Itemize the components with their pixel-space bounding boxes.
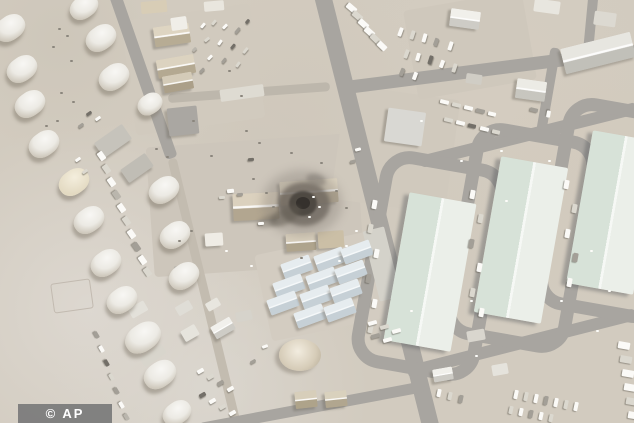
ground-object xyxy=(250,265,253,267)
vehicle xyxy=(447,392,453,401)
vehicle xyxy=(523,392,529,402)
ground-object xyxy=(410,310,413,312)
building xyxy=(515,78,547,102)
building xyxy=(384,108,426,147)
ground-object xyxy=(345,245,348,247)
vehicle xyxy=(617,341,630,350)
vehicle xyxy=(248,158,254,162)
vehicle xyxy=(548,414,554,423)
ground-object xyxy=(58,28,61,30)
ground-object xyxy=(190,230,193,232)
vehicle xyxy=(528,410,534,419)
vehicle xyxy=(543,396,549,406)
building xyxy=(204,0,225,12)
ground-object xyxy=(470,300,473,302)
vehicle xyxy=(627,411,634,420)
ground-object xyxy=(596,330,599,332)
ground-object xyxy=(272,206,275,208)
building xyxy=(324,390,348,408)
ground-object xyxy=(240,95,243,97)
vehicle xyxy=(619,355,632,364)
vehicle xyxy=(436,389,442,398)
satellite-image: © AP xyxy=(0,0,634,423)
ground-object xyxy=(192,120,195,122)
ground-object xyxy=(210,155,213,157)
dome-tent xyxy=(279,339,321,371)
vehicle xyxy=(553,398,559,408)
ground-object xyxy=(335,190,338,192)
ground-object xyxy=(45,125,48,127)
ground-object xyxy=(70,60,73,62)
ground-object xyxy=(166,156,169,158)
ground-object xyxy=(505,200,508,202)
ground-object xyxy=(155,148,158,150)
building xyxy=(491,363,509,377)
building xyxy=(465,73,482,85)
ground-object xyxy=(66,35,69,37)
vehicle xyxy=(623,383,634,392)
building xyxy=(170,16,188,31)
ground-object xyxy=(500,150,503,152)
ground-object xyxy=(252,178,255,180)
ground-object xyxy=(560,300,563,302)
vehicle xyxy=(508,406,514,415)
ground-object xyxy=(608,290,611,292)
vehicle xyxy=(538,412,544,421)
vehicle xyxy=(518,408,524,417)
ground-object xyxy=(548,160,551,162)
ground-object xyxy=(308,216,311,218)
ground-object xyxy=(338,260,341,262)
ground-object xyxy=(290,152,293,154)
vehicle xyxy=(219,196,225,200)
ground-object xyxy=(420,120,423,122)
vehicle xyxy=(227,189,234,194)
vehicle xyxy=(573,402,579,412)
vehicle xyxy=(625,397,634,406)
building xyxy=(294,390,318,409)
building xyxy=(593,11,617,28)
ground-object xyxy=(52,46,55,48)
ground-object xyxy=(56,120,59,122)
vehicle xyxy=(513,390,519,400)
vehicle xyxy=(621,369,634,378)
ap-watermark: © AP xyxy=(18,404,112,423)
ground-object xyxy=(245,130,248,132)
ground-object xyxy=(318,206,321,208)
ground-object xyxy=(258,142,261,144)
ground-object xyxy=(300,257,303,259)
ground-object xyxy=(265,192,268,194)
building xyxy=(205,232,224,246)
ground-object xyxy=(320,162,323,164)
ground-object xyxy=(225,250,228,252)
ground-object xyxy=(60,92,63,94)
ground-object xyxy=(345,207,348,209)
ground-object xyxy=(312,196,315,198)
vehicle xyxy=(458,395,464,404)
berm-outline xyxy=(50,278,94,313)
vehicle xyxy=(237,193,243,197)
ground-object xyxy=(460,160,463,162)
building xyxy=(141,0,168,14)
ground-object xyxy=(72,101,75,103)
vehicle xyxy=(258,222,264,226)
vehicle xyxy=(533,394,539,404)
ground-object xyxy=(590,250,593,252)
ground-object xyxy=(475,355,478,357)
ground-object xyxy=(355,230,358,232)
vehicle xyxy=(563,400,569,410)
ground-object xyxy=(228,70,231,72)
ground-object xyxy=(178,240,181,242)
